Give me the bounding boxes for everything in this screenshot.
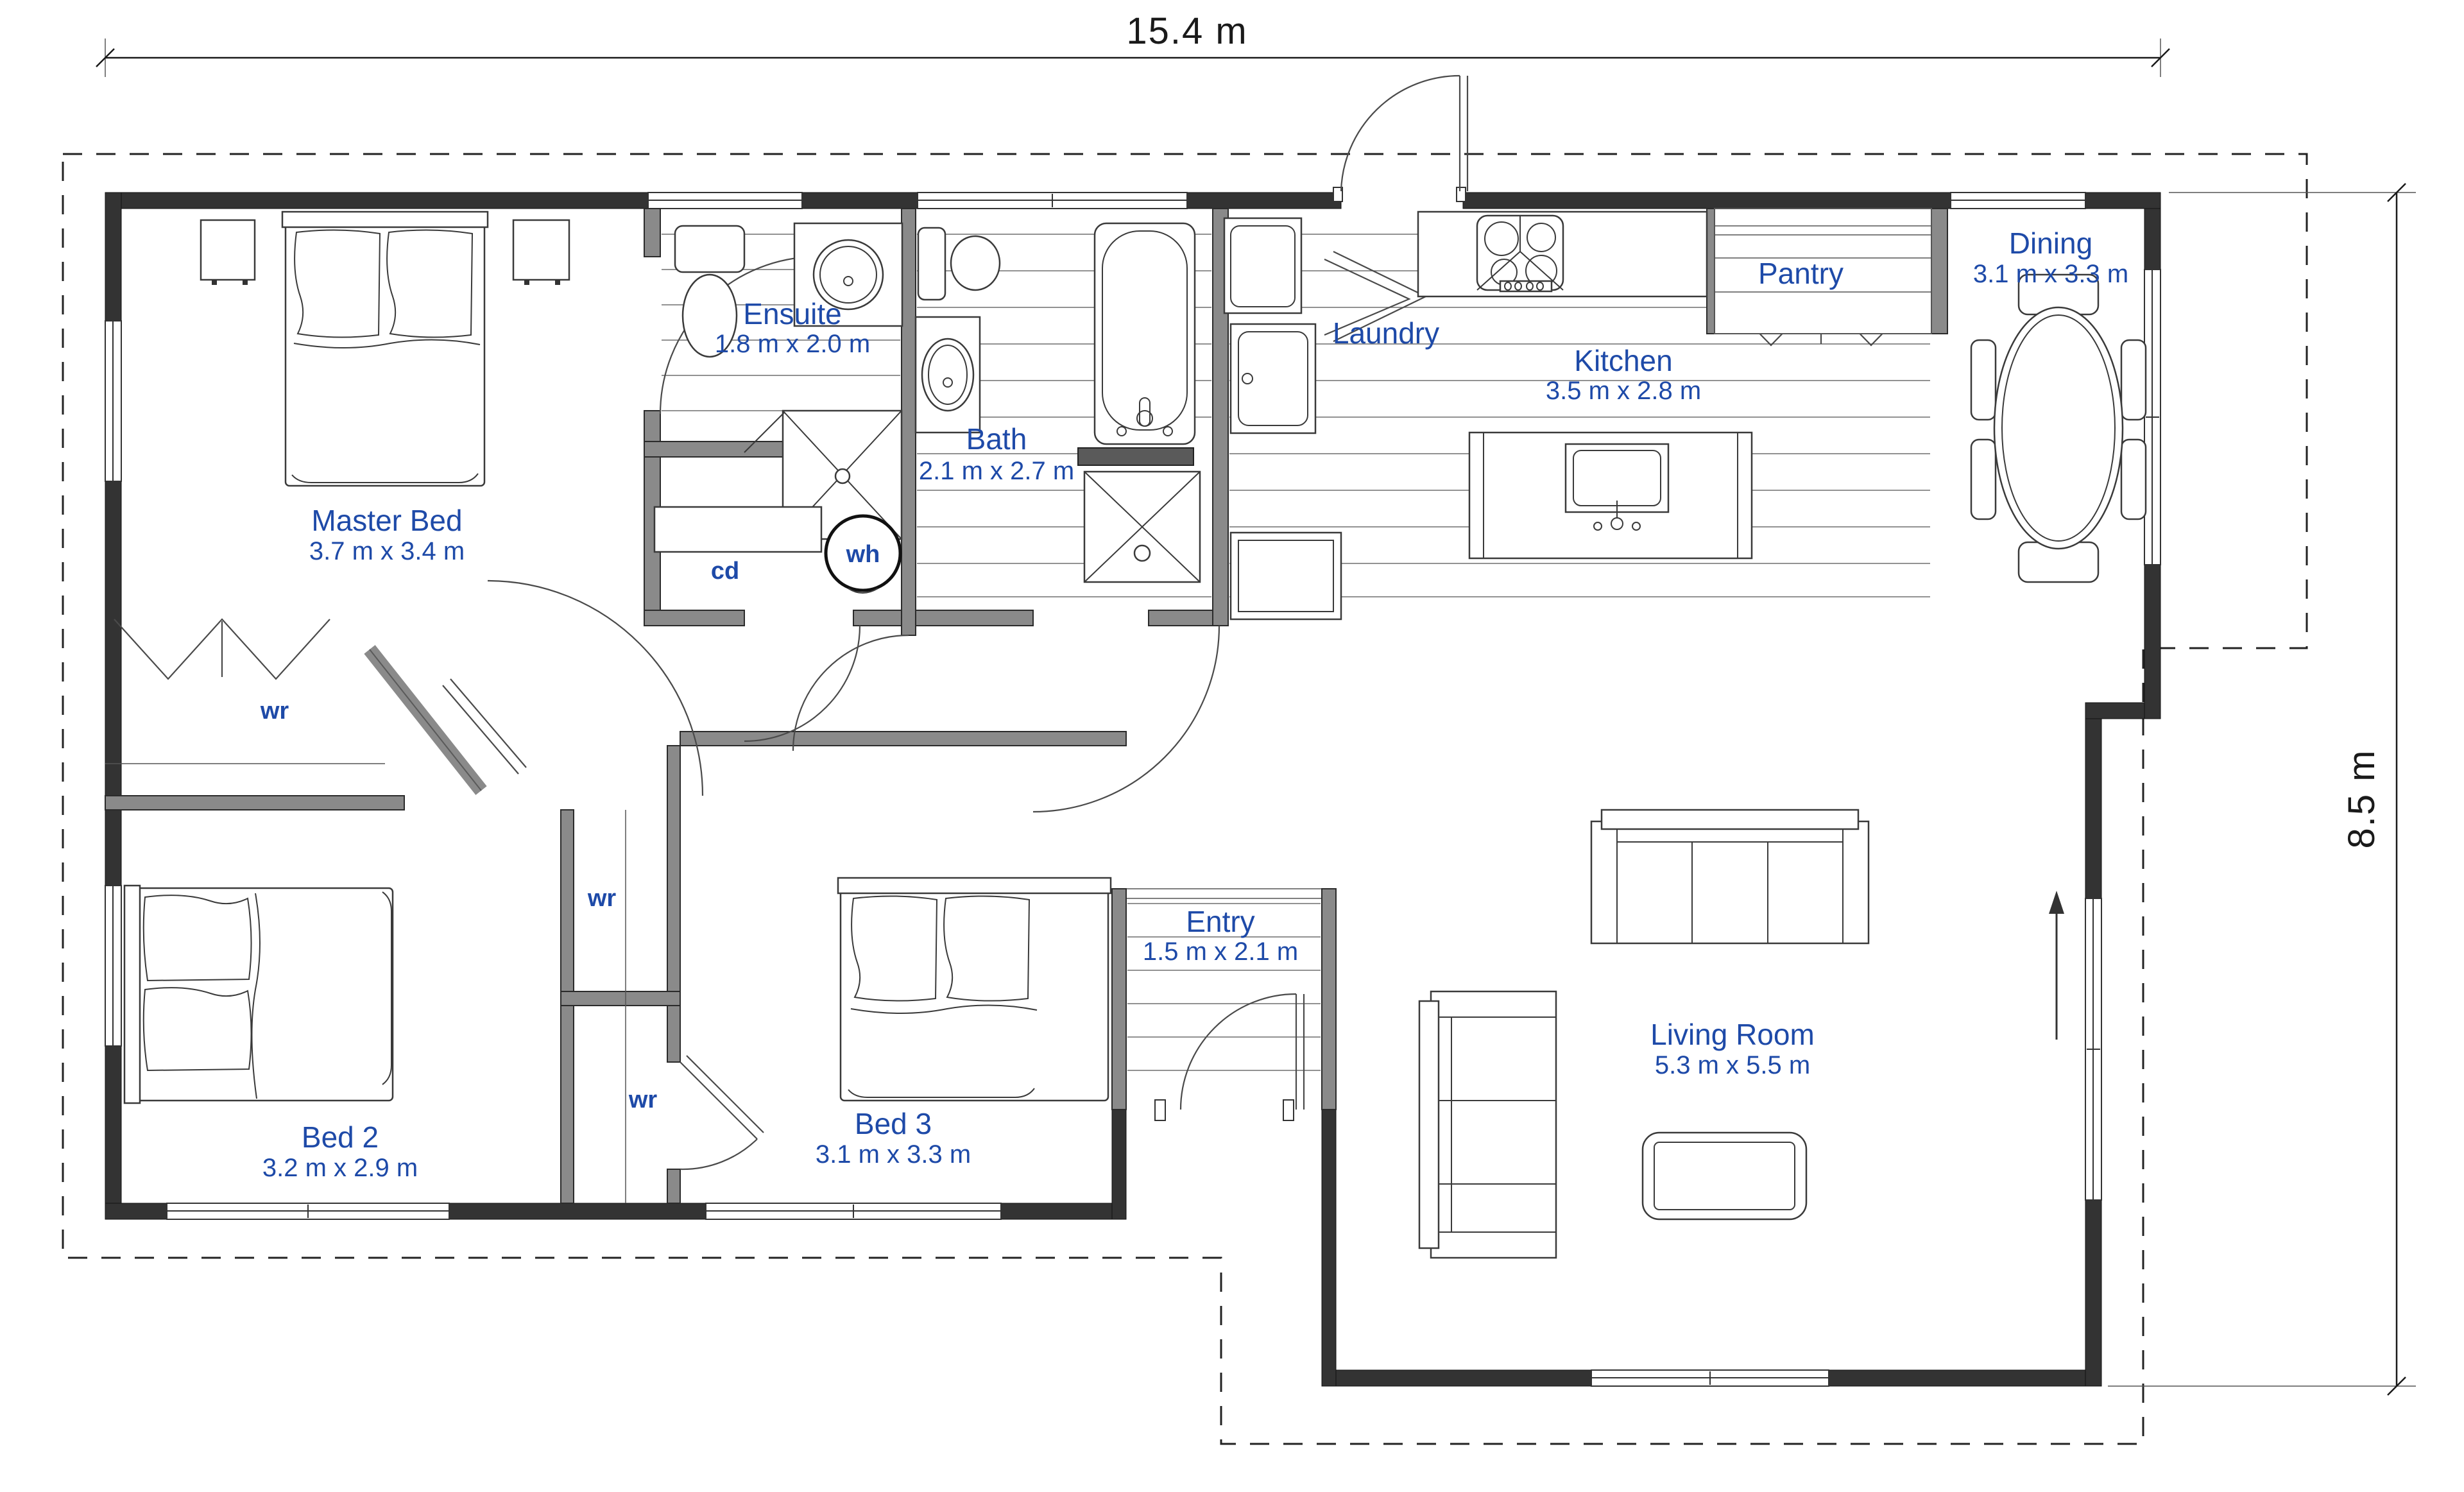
water-heater-label: wh	[846, 541, 880, 568]
master-bed-dims: 3.7 m x 3.4 m	[309, 537, 465, 565]
wardrobe-label-3: wr	[628, 1086, 658, 1113]
kitchen-island	[1469, 433, 1752, 558]
cupboard-door-arc	[744, 626, 860, 741]
laundry-tub-icon	[1231, 324, 1315, 433]
living-room-label: Living Room	[1650, 1018, 1815, 1051]
master-bed-icon	[282, 212, 488, 486]
hall-door-arc	[1033, 626, 1219, 812]
bath-vanity-icon	[916, 317, 980, 433]
cupboard-bench	[654, 507, 821, 552]
bath-dims: 2.1 m x 2.7 m	[919, 457, 1074, 485]
dimension-width: 15.4 m	[96, 10, 2169, 77]
bed2-label: Bed 2	[302, 1120, 379, 1154]
bathtub-icon	[1095, 223, 1195, 444]
laundry-exterior-door	[1333, 76, 1467, 202]
bed2-icon	[124, 886, 393, 1103]
entry-label: Entry	[1186, 905, 1254, 938]
north-arrow-icon	[2049, 891, 2064, 1040]
bath-toilet-icon	[918, 228, 1000, 300]
ensuite-label: Ensuite	[743, 297, 841, 330]
wardrobe-bifold-doors	[114, 619, 330, 679]
ensuite-dims: 1.8 m x 2.0 m	[715, 330, 870, 358]
master-bed-label: Master Bed	[311, 504, 462, 537]
pantry-label: Pantry	[1758, 257, 1844, 290]
floor-plan-canvas: 15.4 m 8.5 m Master Bed 3.7 m x 3.4 m En…	[0, 0, 2464, 1492]
stove-icon	[1477, 216, 1563, 291]
dining-dims: 3.1 m x 3.3 m	[1973, 260, 2128, 288]
laundry-label: Laundry	[1333, 316, 1439, 350]
bed3-dims: 3.1 m x 3.3 m	[816, 1140, 971, 1169]
sofa-3seat-icon	[1591, 810, 1869, 943]
dining-table-icon	[1971, 275, 2146, 582]
height-dimension-label: 8.5 m	[2341, 749, 2383, 848]
bed3-icon	[838, 878, 1111, 1101]
bed3-door	[680, 1056, 764, 1169]
bed3-label: Bed 3	[855, 1107, 932, 1140]
floor-plan: 15.4 m 8.5 m Master Bed 3.7 m x 3.4 m En…	[0, 0, 2464, 1492]
cupboard-label: cd	[711, 558, 739, 585]
living-room-dims: 5.3 m x 5.5 m	[1655, 1051, 1810, 1079]
kitchen-dims: 3.5 m x 2.8 m	[1546, 377, 1701, 405]
kitchen-label: Kitchen	[1574, 344, 1672, 377]
bath-shower-icon	[1084, 472, 1200, 582]
front-door	[1155, 994, 1304, 1120]
coffee-table-icon	[1643, 1133, 1806, 1219]
wardrobe-label-2: wr	[587, 885, 617, 912]
bath-label: Bath	[966, 422, 1027, 456]
width-dimension-label: 15.4 m	[1126, 10, 1247, 52]
dining-label: Dining	[2009, 227, 2092, 260]
wardrobe-label-1: wr	[260, 698, 289, 725]
sofa-2seat-icon	[1419, 991, 1556, 1258]
entry-dims: 1.5 m x 2.1 m	[1143, 938, 1298, 966]
dryer-icon	[1231, 533, 1341, 619]
bed2-dims: 3.2 m x 2.9 m	[262, 1154, 418, 1182]
washing-machine-icon	[1224, 218, 1301, 313]
